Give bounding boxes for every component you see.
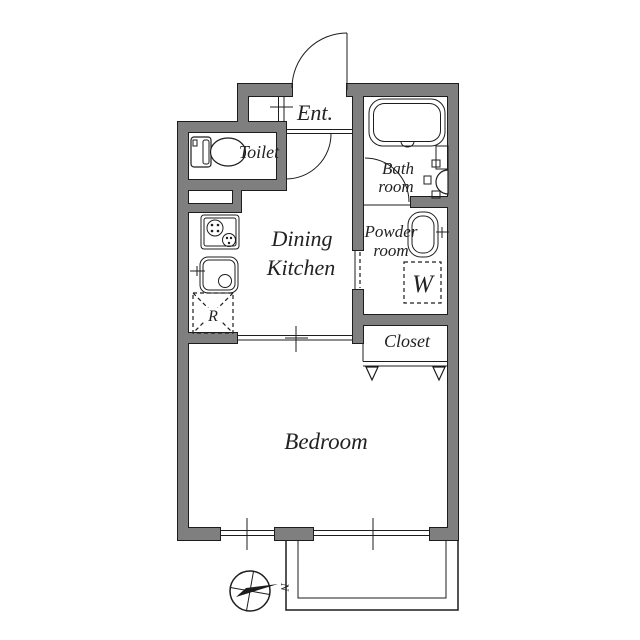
compass-needle [236, 584, 278, 597]
balcony-inner-rail [298, 540, 446, 598]
bath-sink-icon [424, 146, 448, 198]
dining-kitchen-label-1: Dining [270, 226, 332, 251]
hall-door-swing [286, 134, 331, 179]
balcony [286, 540, 458, 610]
stove-icon [201, 215, 239, 249]
entrance-door-swing [292, 33, 347, 88]
floor-plan: Ent. Toilet Bath room [0, 0, 640, 640]
room-powder: W Powder room [355, 212, 449, 303]
balcony-outer-rail [286, 540, 458, 610]
compass-north-label: N [278, 582, 292, 592]
refrigerator-icon: R [193, 293, 233, 333]
closet-label: Closet [384, 331, 431, 351]
window-left [220, 518, 275, 550]
window-right [313, 518, 430, 550]
washing-machine-icon: W [404, 262, 441, 303]
bedroom-label: Bedroom [284, 429, 367, 454]
room-bath: Bath room [363, 99, 448, 205]
bath-label-2: room [378, 177, 413, 196]
dining-kitchen-label-2: Kitchen [266, 255, 335, 280]
kitchen-sink-icon [190, 257, 238, 293]
floor-plan-drawing: Ent. Toilet Bath room [0, 0, 640, 640]
washing-machine-label: W [412, 271, 435, 298]
toilet-icon [191, 137, 246, 167]
room-dining-kitchen: R Dining Kitchen [190, 215, 353, 352]
bathtub-icon [369, 99, 445, 147]
room-closet: Closet [363, 331, 448, 380]
entrance-label: Ent. [296, 100, 333, 125]
bath-label-1: Bath [382, 159, 414, 178]
bedroom-sliding-door [237, 326, 353, 352]
powder-label-1: Powder [364, 222, 418, 241]
powder-label-2: room [373, 241, 408, 260]
refrigerator-label: R [207, 308, 218, 325]
closet-folding-doors [363, 362, 448, 381]
room-bedroom: Bedroom [220, 429, 430, 550]
room-toilet: Toilet [191, 137, 280, 167]
toilet-label: Toilet [239, 142, 280, 162]
compass-icon: N [230, 571, 292, 611]
